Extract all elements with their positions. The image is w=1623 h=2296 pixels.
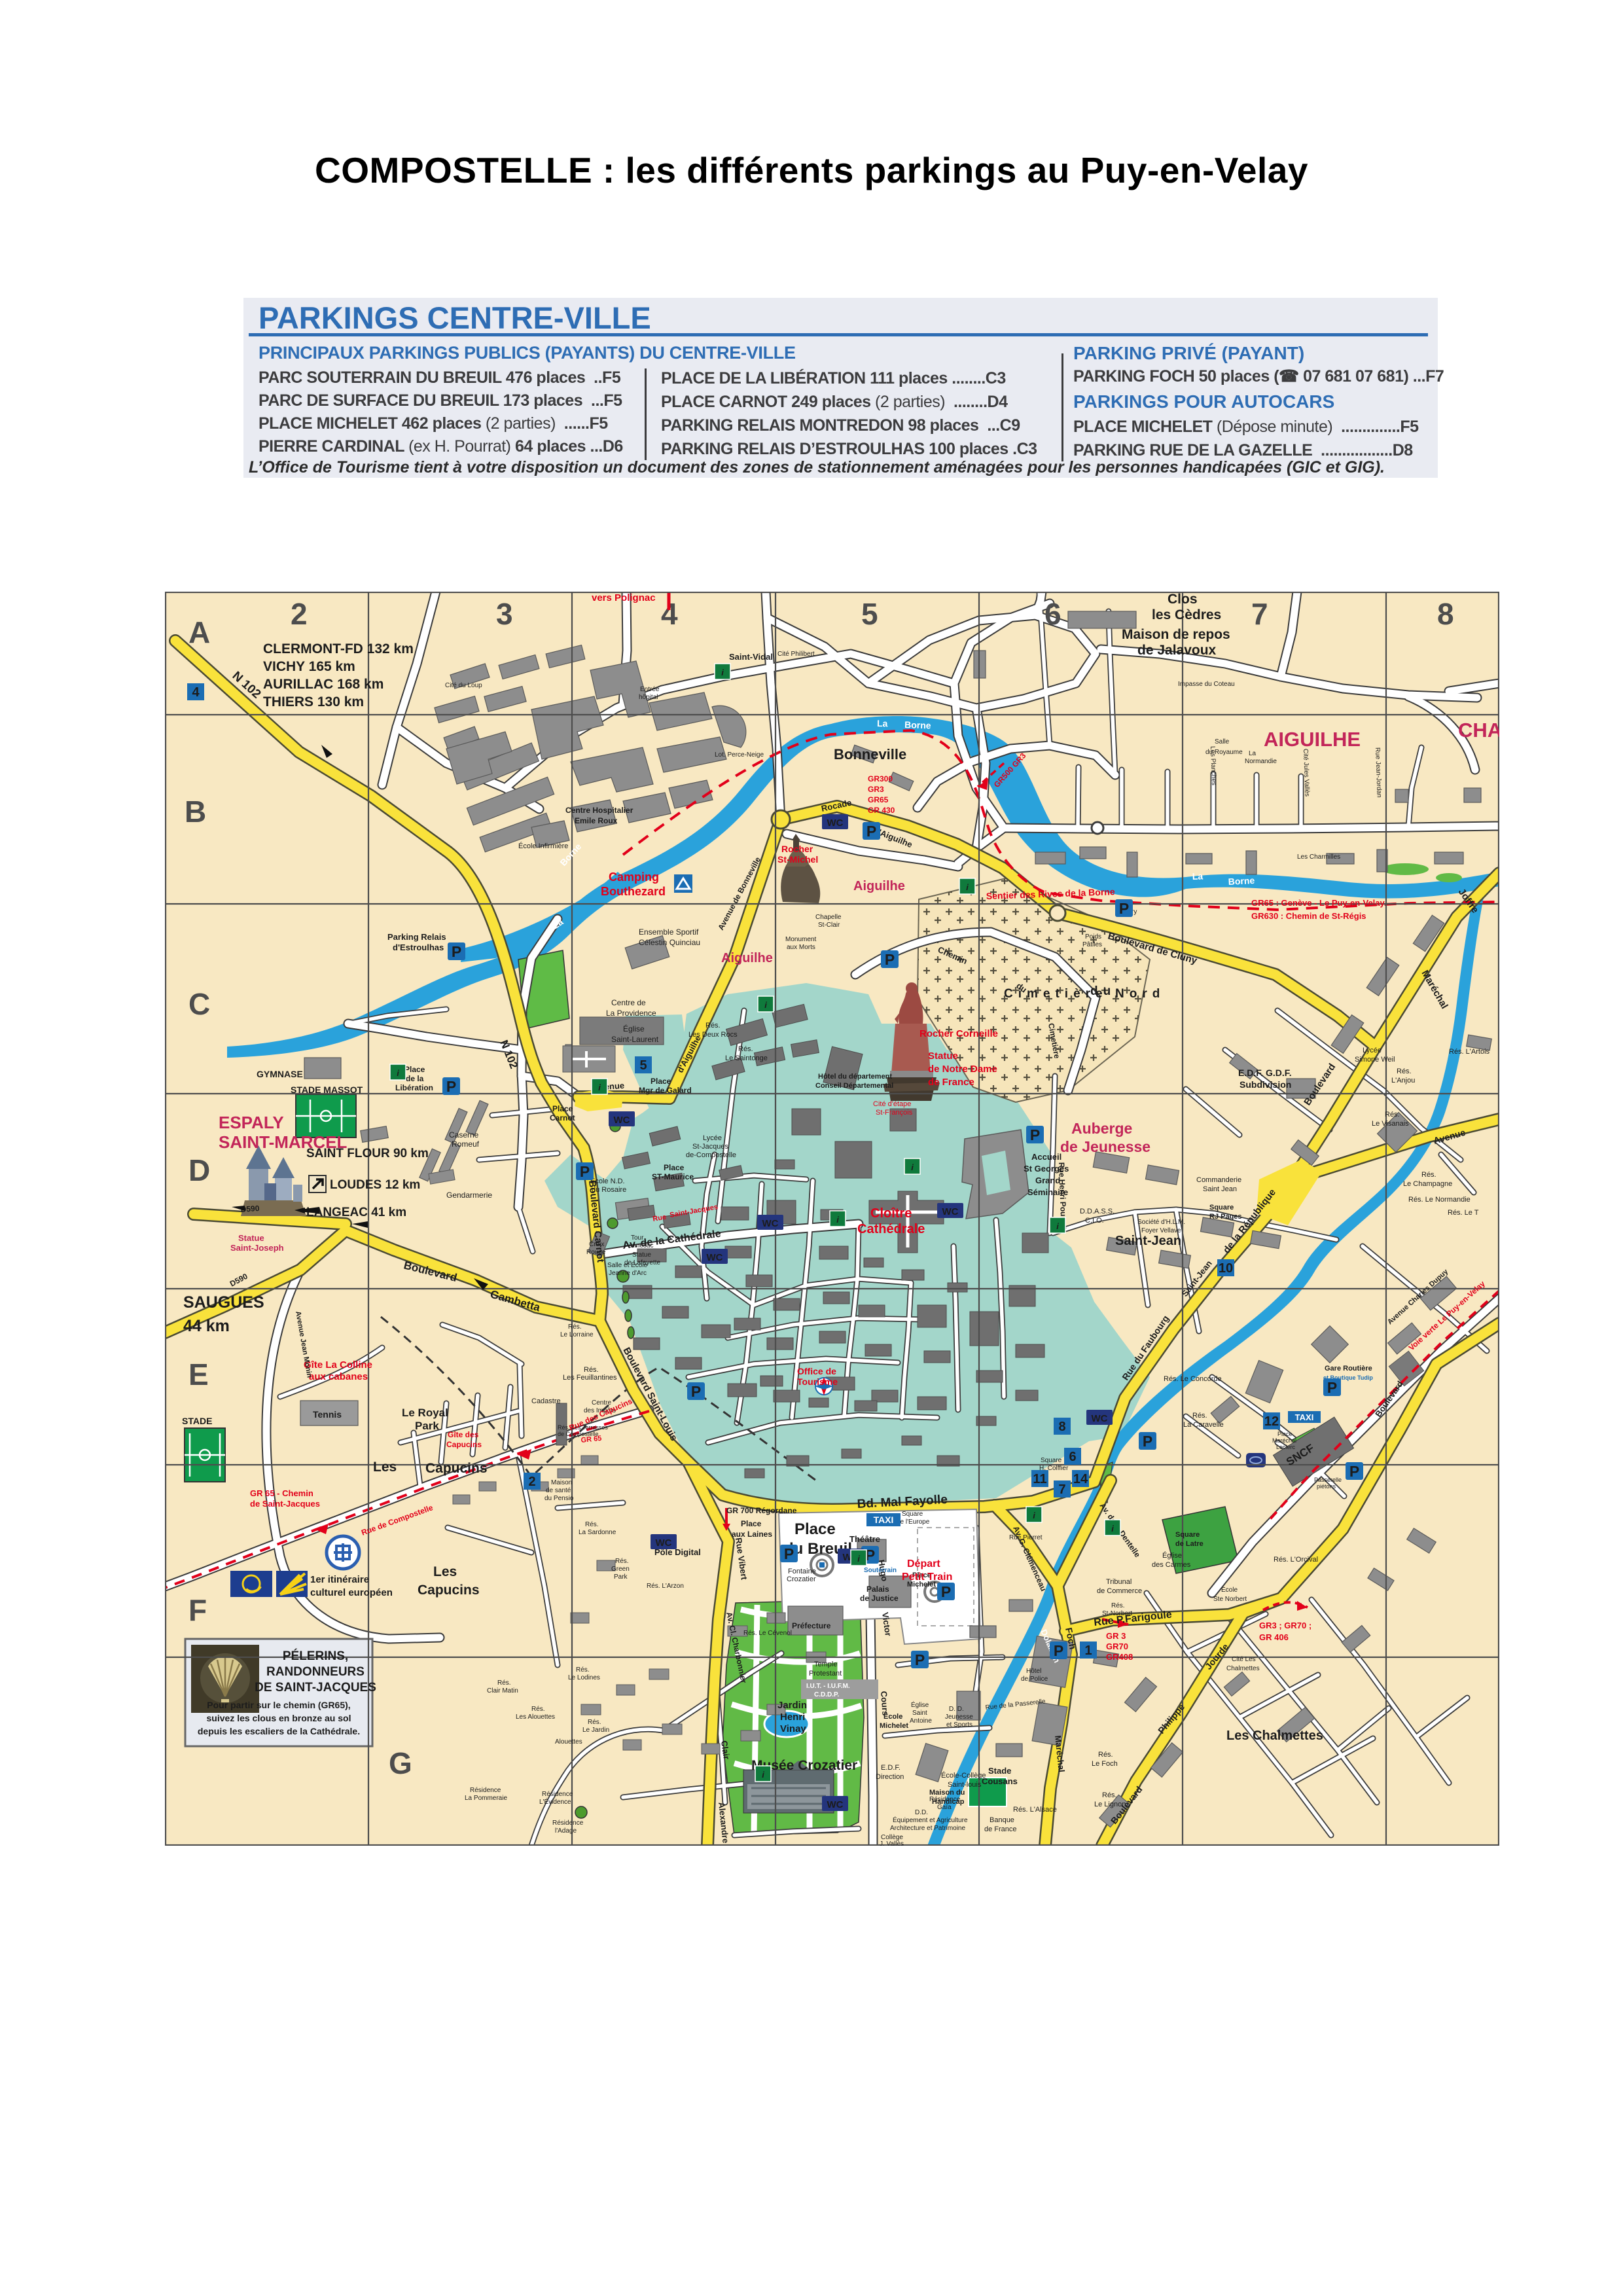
svg-text:Rés. L'Alsace: Rés. L'Alsace	[1013, 1806, 1057, 1814]
svg-text:Rés.: Rés.	[585, 1521, 599, 1528]
svg-text:11: 11	[1033, 1472, 1046, 1486]
svg-text:Borne: Borne	[904, 719, 931, 730]
svg-text:Saint-Jean: Saint-Jean	[1115, 1234, 1181, 1248]
svg-text:1: 1	[1084, 1643, 1092, 1658]
svg-text:Architecture et Patrimoine: Architecture et Patrimoine	[890, 1825, 965, 1832]
svg-text:i: i	[1033, 1511, 1035, 1520]
svg-text:Tennis: Tennis	[313, 1409, 342, 1420]
svg-text:STADE: STADE	[182, 1416, 212, 1426]
svg-text:Église: Église	[911, 1700, 929, 1709]
svg-text:Leclerc: Leclerc	[1276, 1444, 1296, 1450]
svg-text:Jeanne d'Arc: Jeanne d'Arc	[609, 1270, 647, 1277]
svg-text:Square: Square	[1175, 1531, 1200, 1539]
svg-text:Salle: Salle	[1215, 738, 1230, 745]
svg-text:Saint-Joseph: Saint-Joseph	[230, 1243, 284, 1253]
svg-text:de Jalavoux: de Jalavoux	[1137, 643, 1217, 658]
svg-text:Rés. L'Orcival: Rés. L'Orcival	[1274, 1556, 1318, 1564]
svg-text:Résidence: Résidence	[542, 1791, 573, 1798]
svg-text:Fontaine: Fontaine	[788, 1568, 816, 1575]
svg-text:Rés.: Rés.	[615, 1558, 629, 1565]
svg-text:Bonneville: Bonneville	[834, 746, 906, 762]
svg-text:Centre Hospitalier: Centre Hospitalier	[565, 806, 633, 815]
svg-text:Henri: Henri	[780, 1712, 805, 1723]
svg-text:St-Michel: St-Michel	[777, 854, 818, 865]
svg-text:Centre de: Centre de	[611, 998, 646, 1007]
svg-text:Clos: Clos	[1168, 592, 1198, 607]
svg-text:44 km: 44 km	[183, 1317, 230, 1335]
svg-text:Conseil Départemental: Conseil Départemental	[815, 1082, 893, 1090]
svg-text:Départ: Départ	[907, 1558, 940, 1570]
svg-text:La: La	[1249, 750, 1257, 757]
svg-text:A: A	[188, 615, 210, 649]
svg-text:TAXI: TAXI	[874, 1515, 894, 1525]
svg-text:de Notre Dame: de Notre Dame	[928, 1064, 997, 1075]
svg-text:LANGEAC 41 km: LANGEAC 41 km	[306, 1206, 406, 1219]
svg-text:de Saint-Jacques: de Saint-Jacques	[250, 1499, 320, 1509]
svg-text:La: La	[877, 718, 888, 728]
svg-text:i: i	[598, 1083, 601, 1092]
svg-text:Saint-Laurent: Saint-Laurent	[611, 1035, 659, 1044]
svg-text:i: i	[836, 1215, 839, 1225]
svg-text:D: D	[188, 1153, 210, 1187]
svg-text:Aiguilhe: Aiguilhe	[853, 879, 905, 893]
svg-text:Statue: Statue	[238, 1233, 264, 1243]
svg-text:Alouettes: Alouettes	[555, 1738, 582, 1746]
svg-text:i: i	[1056, 1221, 1059, 1231]
svg-text:i: i	[762, 1770, 764, 1780]
svg-text:Gîte des: Gîte des	[448, 1430, 479, 1439]
svg-text:Maréchal: Maréchal	[1272, 1437, 1296, 1444]
svg-text:GR3 ; GR70 ;: GR3 ; GR70 ;	[1259, 1621, 1311, 1630]
svg-text:Place: Place	[651, 1077, 671, 1086]
svg-text:Cité du Loup: Cité du Loup	[445, 682, 482, 689]
svg-text:École Infirmière: École Infirmière	[518, 842, 568, 850]
svg-text:de Justice: de Justice	[860, 1594, 899, 1603]
svg-text:Ste Norbert: Ste Norbert	[1213, 1596, 1247, 1603]
svg-text:Nord: Nord	[1115, 987, 1165, 1001]
svg-text:Rés.: Rés.	[584, 1366, 599, 1374]
svg-text:Les: Les	[373, 1460, 397, 1475]
svg-text:Ensemble Sportif: Ensemble Sportif	[639, 927, 699, 937]
svg-text:de Police: de Police	[1021, 1676, 1048, 1683]
svg-text:Les Alouettes: Les Alouettes	[516, 1713, 555, 1721]
svg-text:Protestant: Protestant	[809, 1670, 842, 1677]
svg-text:Célestin Quinciau: Célestin Quinciau	[639, 938, 700, 947]
svg-text:Place: Place	[741, 1519, 762, 1528]
svg-text:RANDONNEURS: RANDONNEURS	[266, 1665, 365, 1679]
svg-text:Parking Relais: Parking Relais	[387, 932, 446, 942]
svg-text:Rés. Le Normandie: Rés. Le Normandie	[1408, 1196, 1471, 1204]
svg-text:i: i	[1111, 1524, 1114, 1534]
svg-text:Gîte La Colline: Gîte La Colline	[304, 1359, 372, 1371]
svg-text:Capucins: Capucins	[425, 1461, 488, 1476]
svg-text:Rés.: Rés.	[738, 1045, 753, 1053]
svg-text:I.U.T. - I.U.F.M.: I.U.T. - I.U.F.M.	[806, 1683, 850, 1690]
svg-text:aux cabanes: aux cabanes	[309, 1371, 368, 1382]
svg-text:VICHY 165 km: VICHY 165 km	[263, 659, 355, 674]
svg-text:GR408: GR408	[1106, 1652, 1133, 1662]
svg-text:8: 8	[1437, 597, 1454, 631]
svg-text:GR65: GR65	[868, 795, 889, 804]
svg-text:de Lafayette: de Lafayette	[624, 1259, 660, 1266]
svg-text:Place: Place	[664, 1163, 685, 1172]
svg-text:Place: Place	[404, 1065, 425, 1074]
svg-text:Le Jardin: Le Jardin	[582, 1727, 609, 1734]
svg-text:Saint: Saint	[912, 1710, 927, 1717]
svg-text:Subdivision: Subdivision	[1240, 1079, 1291, 1090]
svg-text:5: 5	[639, 1058, 647, 1073]
svg-text:L'Évidence: L'Évidence	[539, 1797, 571, 1806]
svg-text:Rés. Le Cévenol: Rés. Le Cévenol	[743, 1630, 792, 1637]
svg-text:l'Adage: l'Adage	[555, 1827, 577, 1835]
svg-text:Rés.: Rés.	[1421, 1171, 1436, 1179]
svg-text:ESPALY: ESPALY	[219, 1113, 284, 1132]
svg-text:Pour partir sur le chemin (GR6: Pour partir sur le chemin (GR65),	[207, 1700, 350, 1710]
svg-text:E.D.F. G.D.F.: E.D.F. G.D.F.	[1238, 1067, 1292, 1078]
svg-text:Clair Matin: Clair Matin	[487, 1687, 518, 1695]
svg-text:Chalmettes: Chalmettes	[1226, 1665, 1260, 1672]
svg-text:Square: Square	[1041, 1457, 1062, 1464]
svg-text:La: La	[1192, 870, 1204, 882]
svg-text:C.D.D.P.: C.D.D.P.	[814, 1691, 839, 1698]
svg-text:GR 406: GR 406	[1259, 1632, 1289, 1642]
svg-text:du Pensio: du Pensio	[544, 1495, 574, 1502]
svg-text:Les Chalmettes: Les Chalmettes	[1226, 1729, 1323, 1743]
svg-text:École: École	[1221, 1585, 1238, 1594]
svg-text:GR 700 Régordane: GR 700 Régordane	[726, 1506, 797, 1515]
svg-text:Capucins: Capucins	[418, 1583, 480, 1598]
svg-text:Préfecture: Préfecture	[792, 1621, 831, 1630]
svg-text:Camping: Camping	[609, 870, 659, 884]
svg-text:de l'Europe: de l'Europe	[897, 1518, 930, 1526]
svg-text:Les Feuillantines: Les Feuillantines	[563, 1374, 617, 1382]
svg-text:Grand: Grand	[1035, 1175, 1060, 1185]
svg-text:de-Compostelle: de-Compostelle	[686, 1151, 736, 1159]
svg-text:2: 2	[291, 597, 308, 631]
svg-text:Entrée: Entrée	[640, 686, 660, 693]
svg-text:Église: Église	[1162, 1551, 1182, 1560]
svg-text:Poids: Poids	[1085, 933, 1101, 941]
svg-text:8: 8	[1058, 1420, 1065, 1434]
svg-text:Rés.: Rés.	[1192, 1412, 1207, 1420]
svg-text:Lot. Perce-Neige: Lot. Perce-Neige	[715, 751, 764, 759]
svg-text:7: 7	[1251, 597, 1268, 631]
svg-text:Rés.: Rés.	[497, 1679, 511, 1687]
svg-text:Carnot: Carnot	[550, 1113, 575, 1122]
svg-text:CHA: CHA	[1458, 719, 1499, 742]
svg-text:i: i	[397, 1068, 399, 1078]
svg-text:Park: Park	[614, 1573, 628, 1581]
svg-text:Rocher Corneille: Rocher Corneille	[919, 1028, 998, 1039]
svg-text:i: i	[966, 882, 969, 892]
svg-text:Place: Place	[1277, 1431, 1293, 1437]
svg-text:7: 7	[1058, 1482, 1065, 1497]
svg-text:Résidence: Résidence	[470, 1787, 501, 1794]
svg-text:Rés. L'Artois: Rés. L'Artois	[1449, 1048, 1490, 1056]
svg-text:4: 4	[192, 685, 200, 700]
svg-text:SAINT-MARCEL: SAINT-MARCEL	[219, 1132, 348, 1152]
svg-text:depuis les escaliers de la Cat: depuis les escaliers de la Cathédrale.	[198, 1726, 360, 1736]
svg-text:Pâtiles: Pâtiles	[1082, 941, 1102, 948]
svg-text:de Latre: de Latre	[1175, 1540, 1204, 1548]
svg-text:TAXI: TAXI	[1295, 1412, 1314, 1422]
svg-text:10: 10	[1219, 1261, 1233, 1276]
svg-text:Résidence: Résidence	[929, 1796, 961, 1803]
svg-text:Park: Park	[415, 1420, 439, 1432]
svg-text:Michelet: Michelet	[880, 1722, 908, 1730]
svg-text:Rocher: Rocher	[781, 844, 813, 854]
svg-text:GR65 : Genève - Le Puy-en-Vel: GR65 : Genève - Le Puy-en-Velay	[1251, 898, 1385, 908]
svg-text:Le Champagne: Le Champagne	[1403, 1180, 1452, 1188]
svg-text:Rés.: Rés.	[1111, 1602, 1125, 1609]
svg-text:Saint-Vidal: Saint-Vidal	[729, 652, 773, 662]
svg-text:Temple: Temple	[814, 1660, 837, 1668]
svg-text:Hôtel: Hôtel	[1026, 1668, 1041, 1675]
svg-text:THIERS 130 km: THIERS 130 km	[263, 694, 364, 709]
svg-text:C: C	[188, 987, 210, 1021]
svg-text:Lycée: Lycée	[703, 1134, 722, 1142]
svg-text:Cité d'étape: Cité d'étape	[873, 1100, 911, 1108]
svg-text:Gendarmerie: Gendarmerie	[446, 1191, 492, 1200]
svg-text:Rés. L'Arzon: Rés. L'Arzon	[647, 1583, 684, 1590]
svg-text:Résidence: Résidence	[552, 1820, 584, 1827]
svg-text:Cousans: Cousans	[982, 1776, 1018, 1786]
svg-text:de France: de France	[984, 1825, 1017, 1833]
svg-text:GR3: GR3	[868, 785, 884, 794]
svg-text:de France: de France	[928, 1077, 974, 1088]
svg-text:d'Estroulhas: d'Estroulhas	[393, 942, 444, 952]
svg-text:Le Lodines: Le Lodines	[568, 1674, 600, 1681]
svg-text:14: 14	[1073, 1472, 1088, 1486]
svg-text:Saint-louis: Saint-louis	[948, 1781, 982, 1789]
svg-text:5: 5	[861, 597, 878, 631]
svg-text:1er itinéraire: 1er itinéraire	[310, 1574, 369, 1585]
svg-text:Rés.: Rés.	[1385, 1111, 1400, 1119]
svg-text:D.D.A.S.S.: D.D.A.S.S.	[1080, 1208, 1115, 1215]
svg-text:de Jeunesse: de Jeunesse	[1060, 1138, 1150, 1155]
svg-text:Petit Train: Petit Train	[902, 1571, 952, 1583]
svg-text:La Caravelle: La Caravelle	[1183, 1421, 1224, 1429]
svg-text:aux Morts: aux Morts	[787, 944, 815, 951]
svg-text:Banque: Banque	[990, 1816, 1014, 1824]
svg-text:École-Collège: École-Collège	[941, 1771, 986, 1780]
svg-text:Rés. Le Concorde: Rés. Le Concorde	[1164, 1375, 1222, 1383]
svg-text:Gaïa: Gaïa	[937, 1804, 952, 1811]
svg-text:vers Polignac: vers Polignac	[592, 592, 656, 603]
svg-text:G: G	[389, 1746, 412, 1780]
svg-text:Le Saintonge: Le Saintonge	[725, 1054, 768, 1062]
svg-text:Rés.: Rés.	[1102, 1791, 1117, 1799]
svg-text:Le Visanais: Le Visanais	[1372, 1120, 1409, 1128]
svg-text:GR 430: GR 430	[868, 806, 895, 815]
svg-text:ST-Maurice: ST-Maurice	[652, 1172, 694, 1181]
svg-text:Place: Place	[552, 1104, 573, 1113]
svg-text:Statue: Statue	[632, 1251, 651, 1259]
svg-text:Le Royal: Le Royal	[402, 1407, 448, 1419]
svg-text:Rés. Le T: Rés. Le T	[1448, 1209, 1479, 1217]
svg-text:Hôtel du département: Hôtel du département	[818, 1073, 892, 1081]
svg-text:La Sardonne: La Sardonne	[579, 1529, 616, 1536]
svg-text:Rés.: Rés.	[1098, 1751, 1113, 1759]
svg-text:Les Charmilles: Les Charmilles	[1297, 853, 1340, 861]
svg-text:i: i	[721, 668, 724, 677]
svg-text:DE SAINT-JACQUES: DE SAINT-JACQUES	[255, 1681, 376, 1695]
svg-text:Cours: Cours	[879, 1691, 891, 1716]
svg-text:culturel européen: culturel européen	[310, 1587, 393, 1598]
svg-text:Cité Les: Cité Les	[1232, 1656, 1256, 1663]
svg-text:Capucins: Capucins	[446, 1440, 482, 1449]
svg-text:Société d'H.L.M.: Société d'H.L.M.	[1137, 1219, 1185, 1226]
svg-text:Jardin: Jardin	[777, 1700, 807, 1711]
svg-text:STADE MASSOT: STADE MASSOT	[291, 1085, 363, 1095]
svg-text:RJ Pages: RJ Pages	[1209, 1213, 1242, 1221]
svg-text:Tribunal: Tribunal	[1106, 1578, 1132, 1586]
svg-text:piétons: piétons	[1317, 1483, 1336, 1490]
svg-text:Stade: Stade	[988, 1766, 1011, 1776]
svg-text:6: 6	[1044, 597, 1061, 631]
svg-text:Le Lorraine: Le Lorraine	[560, 1331, 594, 1338]
svg-text:Palais: Palais	[866, 1585, 889, 1594]
svg-text:Accueil: Accueil	[1031, 1152, 1061, 1162]
svg-text:Maison: Maison	[551, 1479, 572, 1486]
svg-text:Rés.: Rés.	[1397, 1067, 1412, 1075]
svg-text:du Royaume: du Royaume	[1205, 749, 1243, 756]
svg-text:Église: Église	[623, 1024, 645, 1033]
svg-text:Aiguilhe: Aiguilhe	[721, 951, 773, 965]
svg-text:Simone Weil: Simone Weil	[1355, 1056, 1395, 1064]
svg-text:suivez les clous en bronze au: suivez les clous en bronze au sol	[207, 1713, 351, 1723]
svg-text:B: B	[185, 795, 206, 829]
svg-text:AURILLAC 168 km: AURILLAC 168 km	[263, 677, 383, 692]
svg-text:Auberge: Auberge	[1071, 1120, 1132, 1137]
svg-text:SAUGUES: SAUGUES	[183, 1293, 264, 1312]
svg-text:Jeunesse: Jeunesse	[945, 1713, 973, 1721]
svg-text:de la: de la	[406, 1074, 424, 1083]
svg-text:Rés.: Rés.	[531, 1706, 545, 1713]
svg-text:Bouthezard: Bouthezard	[601, 885, 666, 898]
svg-text:Cathédrale: Cathédrale	[857, 1222, 925, 1236]
svg-text:Borne: Borne	[1228, 875, 1255, 887]
svg-text:Rés.: Rés.	[588, 1719, 601, 1726]
svg-text:Foyer Vellave: Foyer Vellave	[1141, 1227, 1181, 1234]
svg-text:Rés.: Rés.	[705, 1022, 721, 1030]
svg-text:du: du	[1090, 984, 1116, 998]
svg-text:des Carmes: des Carmes	[1152, 1561, 1191, 1569]
svg-text:Le Foch: Le Foch	[1092, 1760, 1118, 1768]
svg-text:Cité Philibert: Cité Philibert	[777, 651, 815, 658]
svg-text:GR 3: GR 3	[1106, 1631, 1126, 1641]
svg-text:Souterrain: Souterrain	[864, 1567, 897, 1574]
svg-text:St-Clair: St-Clair	[818, 922, 840, 929]
svg-text:de Commerce: de Commerce	[1097, 1587, 1142, 1595]
svg-text:Caserne: Caserne	[449, 1130, 479, 1139]
svg-text:Libération: Libération	[395, 1083, 433, 1092]
svg-text:St-François: St-François	[876, 1109, 913, 1117]
svg-text:Office de: Office de	[797, 1366, 836, 1376]
svg-text:Monument: Monument	[785, 936, 816, 943]
svg-text:12: 12	[1264, 1414, 1279, 1429]
svg-text:Statue: Statue	[928, 1050, 958, 1062]
svg-text:GR300: GR300	[868, 774, 893, 783]
svg-text:hôpital: hôpital	[639, 694, 658, 701]
svg-text:Gare Routière: Gare Routière	[1325, 1365, 1372, 1372]
svg-text:AIGUILHE: AIGUILHE	[1264, 728, 1361, 751]
svg-text:GYMNASE: GYMNASE	[257, 1069, 303, 1079]
svg-text:de santé: de santé	[546, 1487, 571, 1494]
svg-text:Emile Roux: Emile Roux	[575, 816, 618, 825]
svg-text:D.D.: D.D.	[915, 1809, 928, 1816]
svg-text:D. D.: D. D.	[949, 1706, 964, 1713]
svg-text:Rés.: Rés.	[576, 1666, 590, 1674]
svg-text:Lycée: Lycée	[1363, 1047, 1382, 1054]
svg-text:Square: Square	[902, 1511, 923, 1518]
svg-text:Mgr de Galard: Mgr de Galard	[639, 1086, 692, 1095]
svg-text:La Providence: La Providence	[606, 1009, 656, 1018]
svg-text:Les: Les	[433, 1564, 457, 1579]
svg-text:Rés.: Rés.	[568, 1323, 582, 1331]
svg-text:Romeuf: Romeuf	[452, 1139, 480, 1149]
svg-text:PÉLERINS,: PÉLERINS,	[283, 1649, 348, 1663]
svg-text:Équipement et Agriculture: Équipement et Agriculture	[893, 1816, 968, 1824]
svg-text:J. Vallès: J. Vallès	[880, 1840, 904, 1846]
svg-text:Place: Place	[794, 1520, 836, 1538]
svg-text:Vinay: Vinay	[780, 1723, 806, 1734]
svg-text:Tourisme: Tourisme	[797, 1376, 838, 1387]
svg-text:Cloître: Cloître	[870, 1206, 912, 1221]
svg-text:GR630 : Chemin de St-Régis: GR630 : Chemin de St-Régis	[1251, 911, 1366, 921]
svg-text:les Cèdres: les Cèdres	[1152, 607, 1221, 622]
svg-text:i: i	[764, 1000, 767, 1010]
svg-text:et Sports: et Sports	[946, 1721, 972, 1729]
svg-text:Square: Square	[1209, 1204, 1234, 1211]
svg-text:2: 2	[528, 1475, 535, 1489]
svg-text:Maison de repos: Maison de repos	[1122, 627, 1230, 642]
svg-text:6: 6	[1069, 1450, 1076, 1464]
svg-text:C.I.O.: C.I.O.	[1085, 1217, 1104, 1225]
svg-text:F: F	[188, 1593, 207, 1627]
svg-text:3: 3	[496, 597, 513, 631]
svg-text:La Pommeraie: La Pommeraie	[465, 1795, 507, 1802]
svg-text:Passerelle: Passerelle	[1314, 1477, 1342, 1483]
svg-text:Saint Jean: Saint Jean	[1203, 1185, 1237, 1193]
svg-text:Théâtre: Théâtre	[849, 1534, 880, 1544]
svg-text:Green: Green	[611, 1566, 630, 1573]
svg-text:Chapelle: Chapelle	[815, 914, 842, 921]
svg-text:GR70: GR70	[1106, 1641, 1128, 1651]
svg-text:Crozatier: Crozatier	[787, 1575, 816, 1583]
svg-text:L'Anjou: L'Anjou	[1391, 1077, 1415, 1085]
svg-text:LOUDES 12 km: LOUDES 12 km	[330, 1178, 420, 1192]
svg-text:Normandie: Normandie	[1245, 758, 1277, 765]
svg-text:Antoine: Antoine	[910, 1717, 932, 1725]
svg-text:E: E	[188, 1357, 209, 1391]
svg-text:CLERMONT-FD 132 km: CLERMONT-FD 132 km	[263, 641, 414, 656]
svg-text:GR 65 - Chemin: GR 65 - Chemin	[250, 1488, 313, 1498]
svg-text:Commanderie: Commanderie	[1196, 1176, 1241, 1184]
svg-text:St-Jacques: St-Jacques	[692, 1143, 729, 1151]
svg-text:Impasse du Coteau: Impasse du Coteau	[1178, 681, 1235, 688]
svg-text:i: i	[857, 1554, 860, 1564]
svg-text:E.D.F.: E.D.F.	[881, 1764, 901, 1772]
svg-text:i: i	[911, 1162, 914, 1172]
svg-text:Direction: Direction	[876, 1773, 904, 1781]
